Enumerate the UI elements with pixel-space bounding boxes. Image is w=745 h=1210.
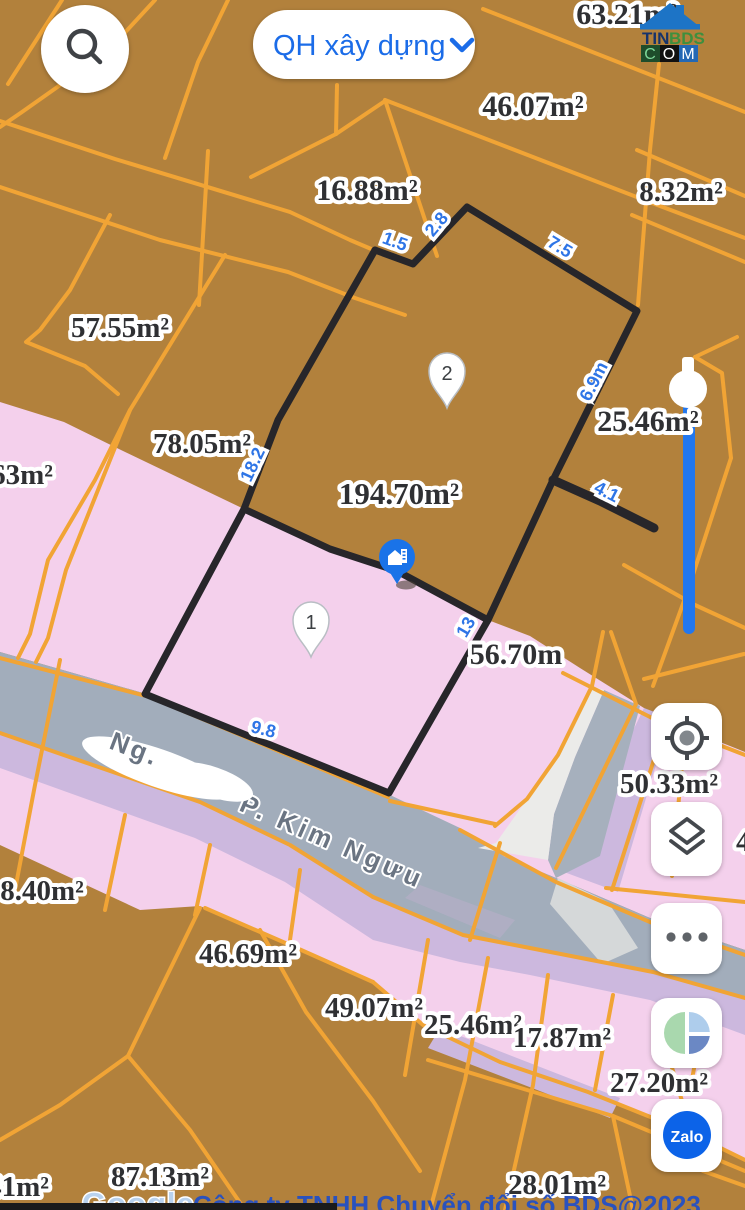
svg-text:63m²: 63m² [0, 459, 53, 491]
svg-text:C: C [644, 46, 656, 63]
svg-text:16.88m²: 16.88m² [316, 174, 417, 207]
svg-text:8.32m²: 8.32m² [639, 176, 723, 208]
svg-text:25.46m²: 25.46m² [424, 1009, 522, 1041]
svg-text:1: 1 [305, 612, 316, 634]
svg-text:56.70m: 56.70m [470, 638, 563, 671]
svg-text:2: 2 [441, 363, 452, 385]
svg-text:194.70m²: 194.70m² [339, 476, 459, 511]
svg-text:78.05m²: 78.05m² [153, 428, 251, 460]
svg-text:QH xây dựng: QH xây dựng [273, 30, 446, 62]
svg-text:50.33m²: 50.33m² [620, 768, 718, 800]
svg-text:O: O [663, 46, 675, 63]
svg-text:27.20m²: 27.20m² [610, 1067, 708, 1099]
svg-text:17.87m²: 17.87m² [513, 1022, 611, 1054]
svg-text:M: M [681, 46, 694, 63]
svg-text:8.40m²: 8.40m² [0, 875, 84, 907]
svg-text:49.07m²: 49.07m² [325, 992, 423, 1024]
svg-text:Zalo: Zalo [671, 1129, 704, 1146]
svg-text:25.46m²: 25.46m² [597, 405, 698, 438]
svg-text:41m²: 41m² [0, 1171, 49, 1203]
svg-text:4: 4 [736, 826, 745, 858]
svg-text:57.55m²: 57.55m² [71, 312, 169, 344]
svg-text:46.07m²: 46.07m² [482, 90, 583, 123]
svg-text:46.69m²: 46.69m² [199, 938, 297, 970]
